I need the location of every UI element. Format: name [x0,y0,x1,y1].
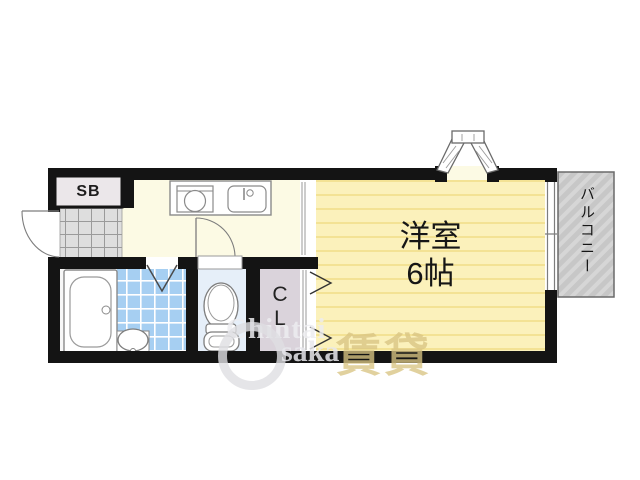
toilet-door [198,256,242,269]
wash-basin [117,329,149,354]
wall-bottom [48,351,557,363]
shoe-box-label: SB [55,176,122,207]
bathtub [64,270,117,354]
kitchen-sink-icon [228,186,266,212]
bay-window-alcove [447,166,487,182]
balcony-window-icon [545,182,557,290]
wall-right-upper [545,168,557,184]
closet-label-line2: L [258,307,302,331]
kitchen-counter [170,181,271,215]
balcony-label: バルコニー [575,186,597,304]
floor-plan: SB 洋室 6帖 バルコニー C L Chintai saka 賃貸 [0,0,640,480]
stove-icon [177,186,213,212]
closet-label: C L [258,283,302,331]
room-size: 6帖 [316,255,545,292]
wall-mid-a [48,257,146,269]
closet-label-line1: C [258,283,302,307]
entrance-tile-floor [60,206,122,263]
toilet [204,283,239,351]
room-label: 洋室 6帖 [316,218,545,292]
wall-bath-toilet [186,257,198,351]
entrance-door [22,211,59,257]
wall-right-lower [545,290,557,363]
wall-left-lower [48,257,60,363]
room-name: 洋室 [316,218,545,255]
